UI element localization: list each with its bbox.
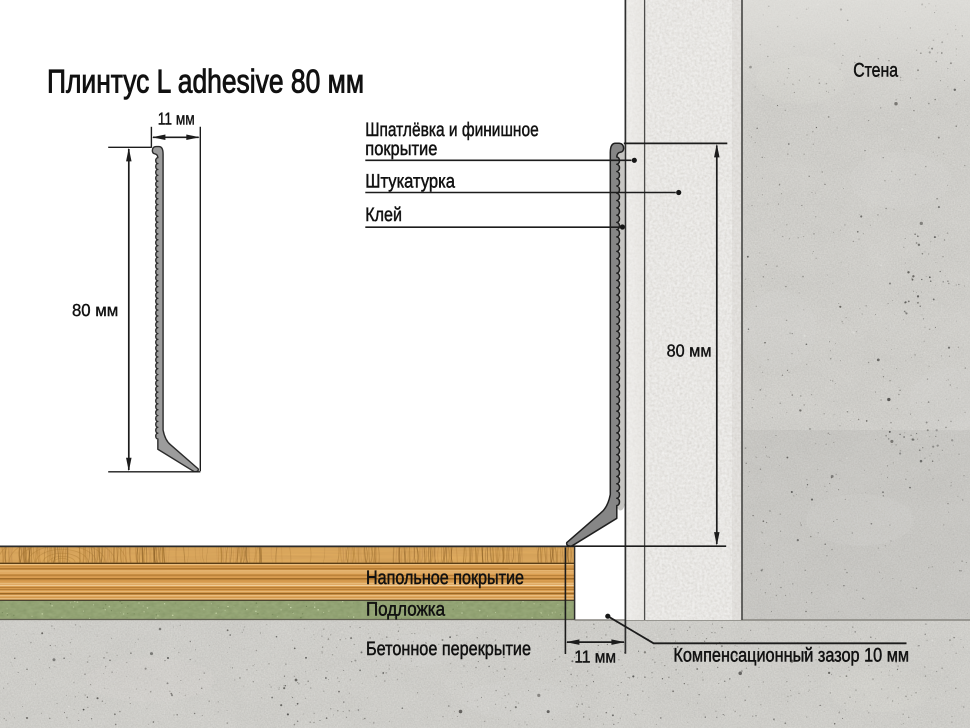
svg-text:11 мм: 11 мм	[158, 109, 195, 129]
svg-text:Напольное покрытие: Напольное покрытие	[366, 567, 524, 589]
svg-text:11 мм: 11 мм	[574, 646, 616, 666]
svg-text:покрытие: покрытие	[365, 138, 437, 160]
svg-text:Бетонное перекрытие: Бетонное перекрытие	[366, 638, 531, 660]
svg-text:Клей: Клей	[365, 204, 402, 226]
svg-text:Стена: Стена	[853, 60, 898, 82]
svg-text:Штукатурка: Штукатурка	[365, 170, 455, 192]
svg-text:80 мм: 80 мм	[667, 341, 712, 361]
svg-text:Подложка: Подложка	[366, 598, 445, 620]
svg-text:80 мм: 80 мм	[72, 300, 118, 320]
svg-text:Плинтус L adhesive 80 мм: Плинтус L adhesive 80 мм	[47, 63, 364, 100]
svg-text:Компенсационный зазор 10 мм: Компенсационный зазор 10 мм	[673, 645, 909, 667]
